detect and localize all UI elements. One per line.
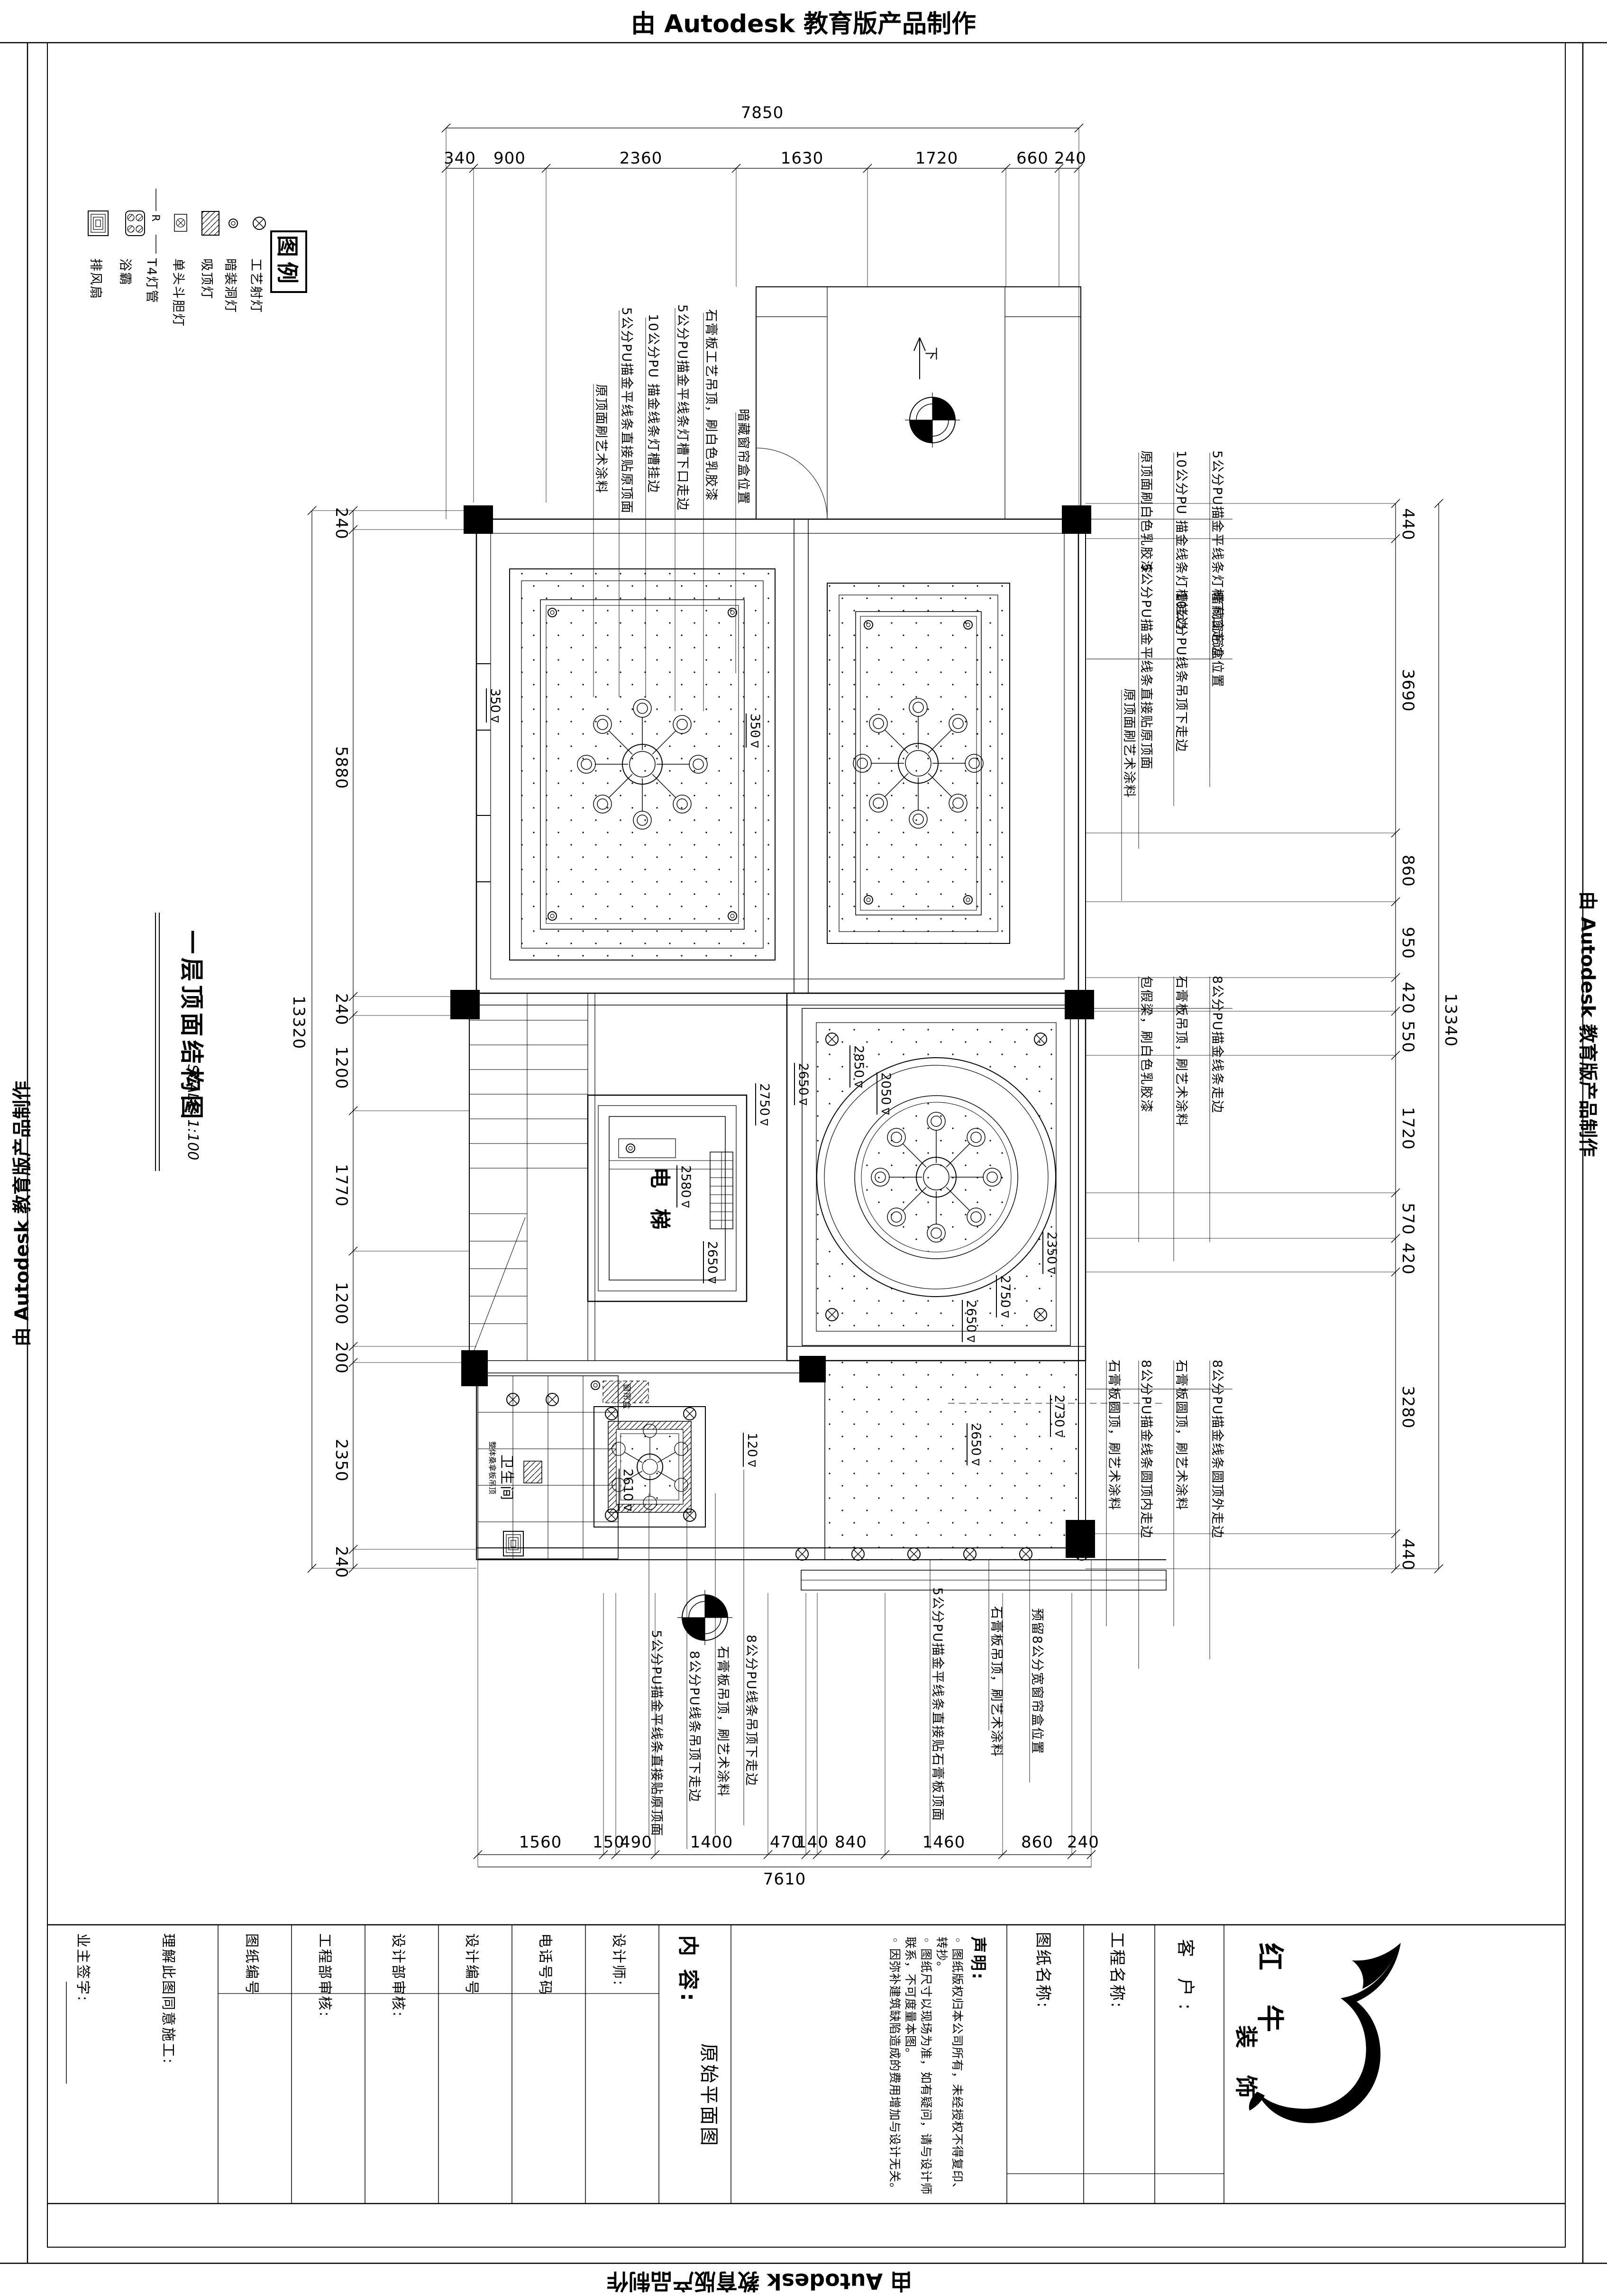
dim-value: 5880 bbox=[332, 746, 351, 789]
legend-title: 图例 bbox=[270, 230, 307, 293]
legend-item-label: 工艺射灯 bbox=[248, 258, 266, 313]
level-flag: 2650∇ bbox=[794, 1063, 811, 1105]
field-agree-construction: 理解此图同意施工: bbox=[159, 1933, 180, 2065]
ceiling-note: 原顶面刷艺术涂料 bbox=[1121, 688, 1140, 798]
drawing-sheet: 由 Autodesk 教育版产品制作 由 Autodesk 教育版产品制作 由 … bbox=[0, 0, 1607, 2296]
level-flag: 2610∇ bbox=[619, 1469, 635, 1511]
field-drawing-name: 图纸名称: bbox=[1033, 1932, 1056, 2009]
ceiling-note: 暗藏窗帘盒位置 bbox=[735, 409, 754, 505]
ceiling-note: 预留8公分宽窗帘盒位置 bbox=[1029, 1608, 1048, 1755]
ceiling-note: 石膏板吊顶，刷艺术涂料 bbox=[715, 1646, 733, 1797]
craft-spotlight-icon bbox=[253, 217, 265, 229]
dim-value: 2350 bbox=[332, 1439, 351, 1482]
ceiling-note: 8公分PU描金线条圆顶内走边 bbox=[1138, 1360, 1157, 1539]
ceiling-lamp-icon bbox=[202, 211, 219, 235]
level-flag: 2730∇ bbox=[1050, 1395, 1067, 1437]
dim-value: 550 bbox=[1398, 1021, 1417, 1053]
dim-value: 1770 bbox=[332, 1164, 351, 1207]
level-flag: 2650∇ bbox=[962, 1300, 978, 1342]
level-flag: 2580∇ bbox=[676, 1165, 693, 1207]
field-drawing-no: 图纸编号 bbox=[243, 1933, 264, 1996]
dim-total-bottom: 7610 bbox=[763, 1870, 806, 1889]
level-flag: 2650∇ bbox=[967, 1423, 983, 1465]
dim-value: 660 bbox=[1016, 149, 1049, 168]
dim-value: 860 bbox=[1398, 855, 1417, 887]
dim-value: 570 bbox=[1398, 1203, 1417, 1235]
legend-item-label: 排风扇 bbox=[88, 258, 106, 300]
ceiling-note: 10公分PU 描金线条灯槽挂边 bbox=[645, 314, 664, 494]
room-label-bathroom: 卫生间 bbox=[498, 1454, 519, 1501]
legend-item-label: 单头斗胆灯 bbox=[170, 258, 189, 327]
ceiling-note: 石膏板圆顶，刷艺术涂料 bbox=[1106, 1360, 1124, 1511]
content-value: 原始平面图 bbox=[697, 2043, 724, 2148]
dim-value: 3690 bbox=[1398, 669, 1417, 712]
dim-value: 1200 bbox=[332, 1046, 351, 1089]
ceiling-note: 石膏板工艺吊顶，刷白色乳胶漆 bbox=[703, 309, 721, 502]
legend-item-label: T4灯管 bbox=[144, 258, 162, 304]
ceiling-note: 暗藏窗帘盒位置 bbox=[1209, 592, 1228, 688]
level-flag: 2850∇ bbox=[849, 1045, 866, 1088]
ceiling-note: 石膏板吊顶，刷艺术涂料 bbox=[988, 1606, 1007, 1757]
field-client: 客 户: bbox=[1174, 1939, 1200, 2017]
room-label-elevator: 电 梯 bbox=[647, 1167, 677, 1236]
dim-value: 1460 bbox=[922, 1833, 966, 1852]
field-design-review: 设计部审核: bbox=[389, 1933, 410, 2018]
dim-value: 420 bbox=[1398, 1243, 1417, 1275]
dim-value: 240 bbox=[332, 1546, 351, 1578]
plot-stamp-top: 由 Autodesk 教育版产品制作 bbox=[0, 4, 1607, 39]
declaration-title: 声明: bbox=[967, 1937, 988, 2195]
dim-value: 1560 bbox=[519, 1833, 562, 1852]
dim-value: 140 bbox=[796, 1833, 829, 1852]
field-designer: 设计师: bbox=[610, 1933, 630, 1986]
dim-value: 240 bbox=[1054, 149, 1087, 168]
legend-item-label: 浴霸 bbox=[117, 258, 136, 286]
plot-stamp-left: 由 Autodesk 教育版产品制作 bbox=[7, 1081, 34, 1346]
dim-value: 440 bbox=[1398, 508, 1417, 540]
dim-value: 1400 bbox=[690, 1833, 733, 1852]
dim-total-right: 13340 bbox=[1441, 993, 1460, 1047]
ceiling-note: 5公分PU描金平线条直接贴原顶面 bbox=[1138, 563, 1157, 770]
ceiling-note: 石膏板圆顶，刷艺术涂料 bbox=[1173, 1360, 1192, 1511]
single-head-lamp-icon bbox=[174, 214, 187, 231]
field-design-no: 设计编号 bbox=[463, 1933, 484, 1996]
field-project-name: 工程名称: bbox=[1107, 1932, 1130, 2009]
ceiling-note: 8公分PU描金线条走边 bbox=[1209, 976, 1228, 1114]
dim-value: 860 bbox=[1021, 1833, 1053, 1852]
dim-value: 200 bbox=[332, 1342, 351, 1374]
bath-heater-icon bbox=[126, 211, 145, 236]
legend-item-label: 暗装洞灯 bbox=[222, 258, 241, 313]
company-name-part2: 装 饰 bbox=[1232, 2025, 1265, 2107]
declaration-block: 声明: 图纸版权归本公司所有，未经授权不得复印、转抄。 图纸尺寸以现场为准，如有… bbox=[887, 1937, 988, 2195]
field-engineering-review: 工程部审核: bbox=[316, 1933, 337, 2018]
field-phone: 电话号码 bbox=[536, 1933, 557, 1996]
dim-total-top: 7850 bbox=[741, 103, 784, 122]
ceiling-note: 包假梁，刷白色乳胶漆 bbox=[1138, 976, 1157, 1113]
floor-plan-linework bbox=[0, 0, 1607, 2296]
ceiling-note: 石膏板吊顶，刷艺术涂料 bbox=[1173, 976, 1192, 1127]
ceiling-note: 5公分PU描金平线条灯槽下口走边 bbox=[675, 304, 693, 511]
dim-value: 950 bbox=[1398, 927, 1417, 959]
exhaust-fan-icon bbox=[88, 211, 108, 236]
ceiling-note: 5公分PU描金平线条直接贴石膏板顶面 bbox=[930, 1587, 948, 1821]
declaration-item: 图纸版权归本公司所有，未经授权不得复印、转抄。 bbox=[934, 1937, 965, 2195]
level-flag: 2650∇ bbox=[703, 1241, 720, 1283]
level-flag: 120∇ bbox=[743, 1433, 759, 1467]
drawing-scale: SCALE: 1:100 bbox=[184, 1064, 201, 1160]
dim-total-left: 13320 bbox=[289, 996, 308, 1049]
field-owner-signature: 业主签字: bbox=[74, 1933, 95, 2002]
ceiling-note: 8公分PU描金线条圆顶外走边 bbox=[1209, 1360, 1228, 1539]
dim-value: 2360 bbox=[620, 149, 663, 168]
recessed-downlight-icon bbox=[229, 219, 237, 228]
dim-value: 240 bbox=[332, 507, 351, 540]
field-content-label: 内 容: bbox=[675, 1935, 705, 2004]
ceiling-note: 原顶面刷艺术涂料 bbox=[593, 384, 612, 494]
level-flag: 2050∇ bbox=[877, 1072, 893, 1115]
dim-value: 3280 bbox=[1398, 1386, 1417, 1429]
legend-item-label: 吸顶灯 bbox=[199, 258, 217, 300]
dim-value: 440 bbox=[1398, 1538, 1417, 1571]
ceiling-note: 5公分PU描金平线条直接贴原顶面 bbox=[648, 1630, 667, 1837]
declaration-item: 图纸尺寸以现场为准，如有疑问，请与设计师联系，不可度量本图。 bbox=[903, 1937, 934, 2195]
ceiling-note: 原顶面刷白色乳胶漆 bbox=[1138, 450, 1157, 574]
t4-radius-letter: R bbox=[149, 214, 161, 221]
curtain-box-label: 窗帘盒 bbox=[621, 1383, 633, 1409]
dim-value: 1720 bbox=[1398, 1107, 1417, 1150]
level-flag: 2750∇ bbox=[996, 1275, 1013, 1317]
dim-value: 840 bbox=[835, 1833, 867, 1852]
declaration-item: 因弥补建筑缺陷造成的费用增加与设计无关。 bbox=[887, 1937, 903, 2195]
dim-value: 1630 bbox=[781, 149, 824, 168]
dim-value: 1720 bbox=[915, 149, 959, 168]
dim-value: 900 bbox=[493, 149, 526, 168]
level-flag: 2350∇ bbox=[1042, 1232, 1059, 1274]
ceiling-note: 10公分PU线条吊顶下走边 bbox=[1173, 592, 1192, 752]
level-flag: 350∇ bbox=[486, 688, 502, 723]
plot-stamp-right: 由 Autodesk 教育版产品制作 bbox=[1576, 891, 1603, 1157]
stair-direction-label: 下 bbox=[922, 347, 941, 360]
ceiling-note: 8公分PU线条吊顶下走边 bbox=[743, 1635, 762, 1786]
plot-stamp-bottom: 由 Autodesk 教育版产品制作 bbox=[607, 2267, 912, 2296]
level-flag: 350∇ bbox=[746, 713, 762, 748]
dim-value: 490 bbox=[620, 1833, 652, 1852]
level-flag: 2750∇ bbox=[755, 1083, 772, 1125]
bathroom-ceiling-note: 整体桑拿板吊顶 bbox=[487, 1441, 499, 1494]
dim-value: 420 bbox=[1398, 982, 1417, 1014]
dim-value: 240 bbox=[1067, 1833, 1099, 1852]
ceiling-note: 8公分PU线条吊顶下走边 bbox=[686, 1651, 705, 1802]
dim-value: 1200 bbox=[332, 1282, 351, 1325]
dim-value: 240 bbox=[332, 993, 351, 1025]
ceiling-note: 5公分PU描金平线条直接贴原顶面 bbox=[619, 307, 637, 514]
dim-value: 340 bbox=[444, 149, 476, 168]
